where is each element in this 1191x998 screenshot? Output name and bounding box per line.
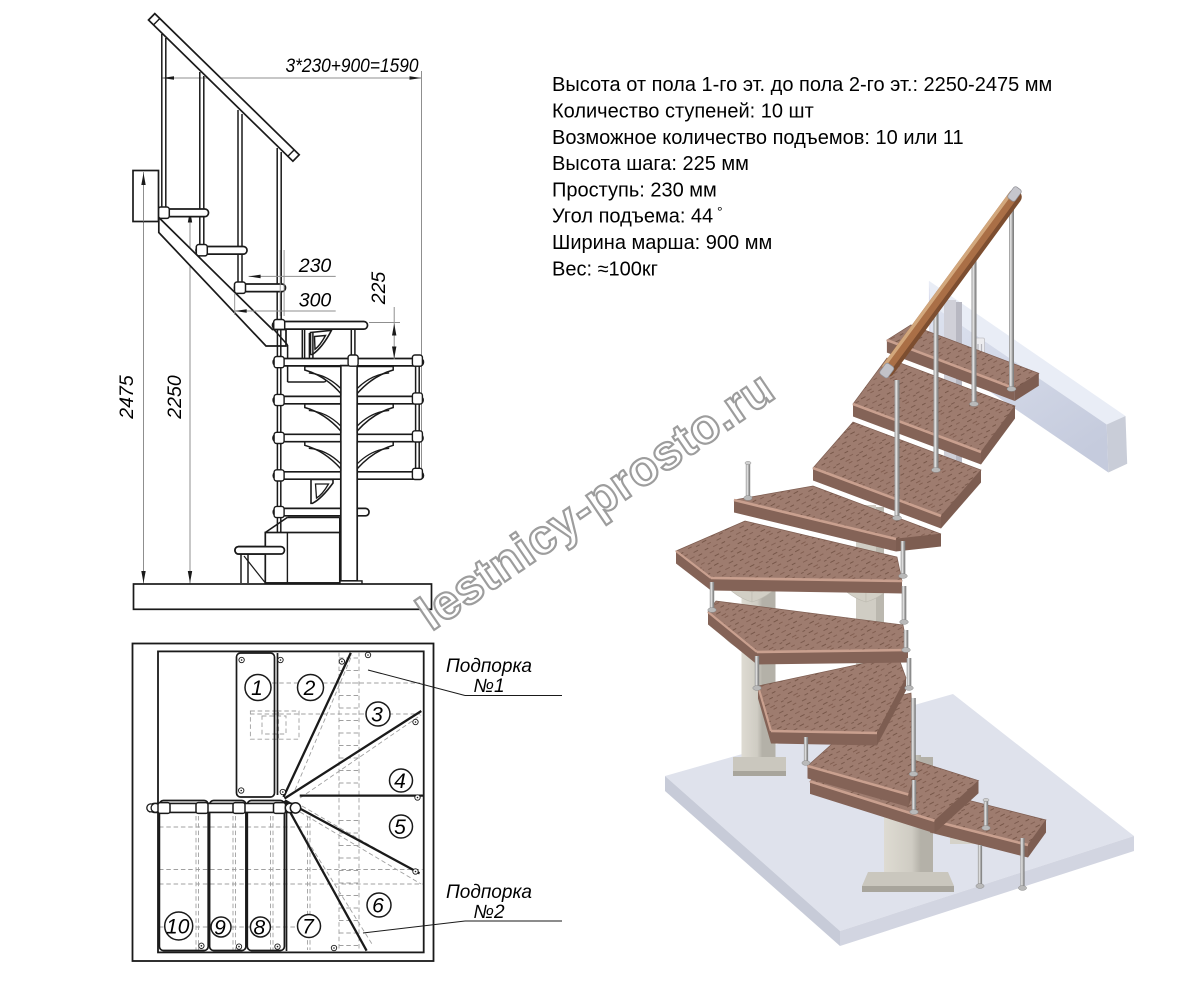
svg-text:Проступь: 230 мм: Проступь: 230 мм: [552, 179, 717, 201]
svg-text:225: 225: [368, 272, 390, 306]
svg-text:9: 9: [214, 917, 226, 940]
svg-text:Ширина марша: 900 мм: Ширина марша: 900 мм: [552, 232, 772, 254]
svg-text:6: 6: [372, 895, 384, 918]
svg-text:Высота от пола 1-го эт. до пол: Высота от пола 1-го эт. до пола 2-го эт.…: [552, 74, 1052, 96]
svg-text:Подпорка: Подпорка: [446, 656, 532, 677]
svg-text:3*230+900=1590: 3*230+900=1590: [286, 55, 419, 77]
svg-text:10: 10: [166, 916, 190, 939]
svg-text:Количество ступеней: 10 шт: Количество ступеней: 10 шт: [552, 101, 814, 123]
svg-text:4: 4: [394, 770, 406, 793]
svg-text:1: 1: [251, 677, 263, 700]
svg-text:№2: №2: [473, 902, 505, 923]
svg-text:Возможное количество подъемов:: Возможное количество подъемов: 10 или 11: [552, 127, 964, 149]
svg-text:Угол подъема: 44 °: Угол подъема: 44 °: [552, 204, 723, 228]
svg-text:2475: 2475: [116, 375, 138, 420]
svg-text:3: 3: [371, 704, 383, 727]
svg-text:230: 230: [298, 255, 332, 277]
svg-text:5: 5: [394, 816, 406, 839]
svg-text:7: 7: [302, 916, 315, 939]
svg-text:300: 300: [299, 290, 332, 312]
svg-text:Вес: ≈100кг: Вес: ≈100кг: [552, 258, 658, 280]
svg-text:Высота шага: 225 мм: Высота шага: 225 мм: [552, 153, 749, 175]
svg-text:8: 8: [254, 917, 266, 940]
svg-text:2: 2: [303, 677, 316, 700]
svg-text:2250: 2250: [164, 375, 186, 420]
svg-text:Подпорка: Подпорка: [446, 882, 532, 903]
svg-text:№1: №1: [473, 676, 504, 697]
